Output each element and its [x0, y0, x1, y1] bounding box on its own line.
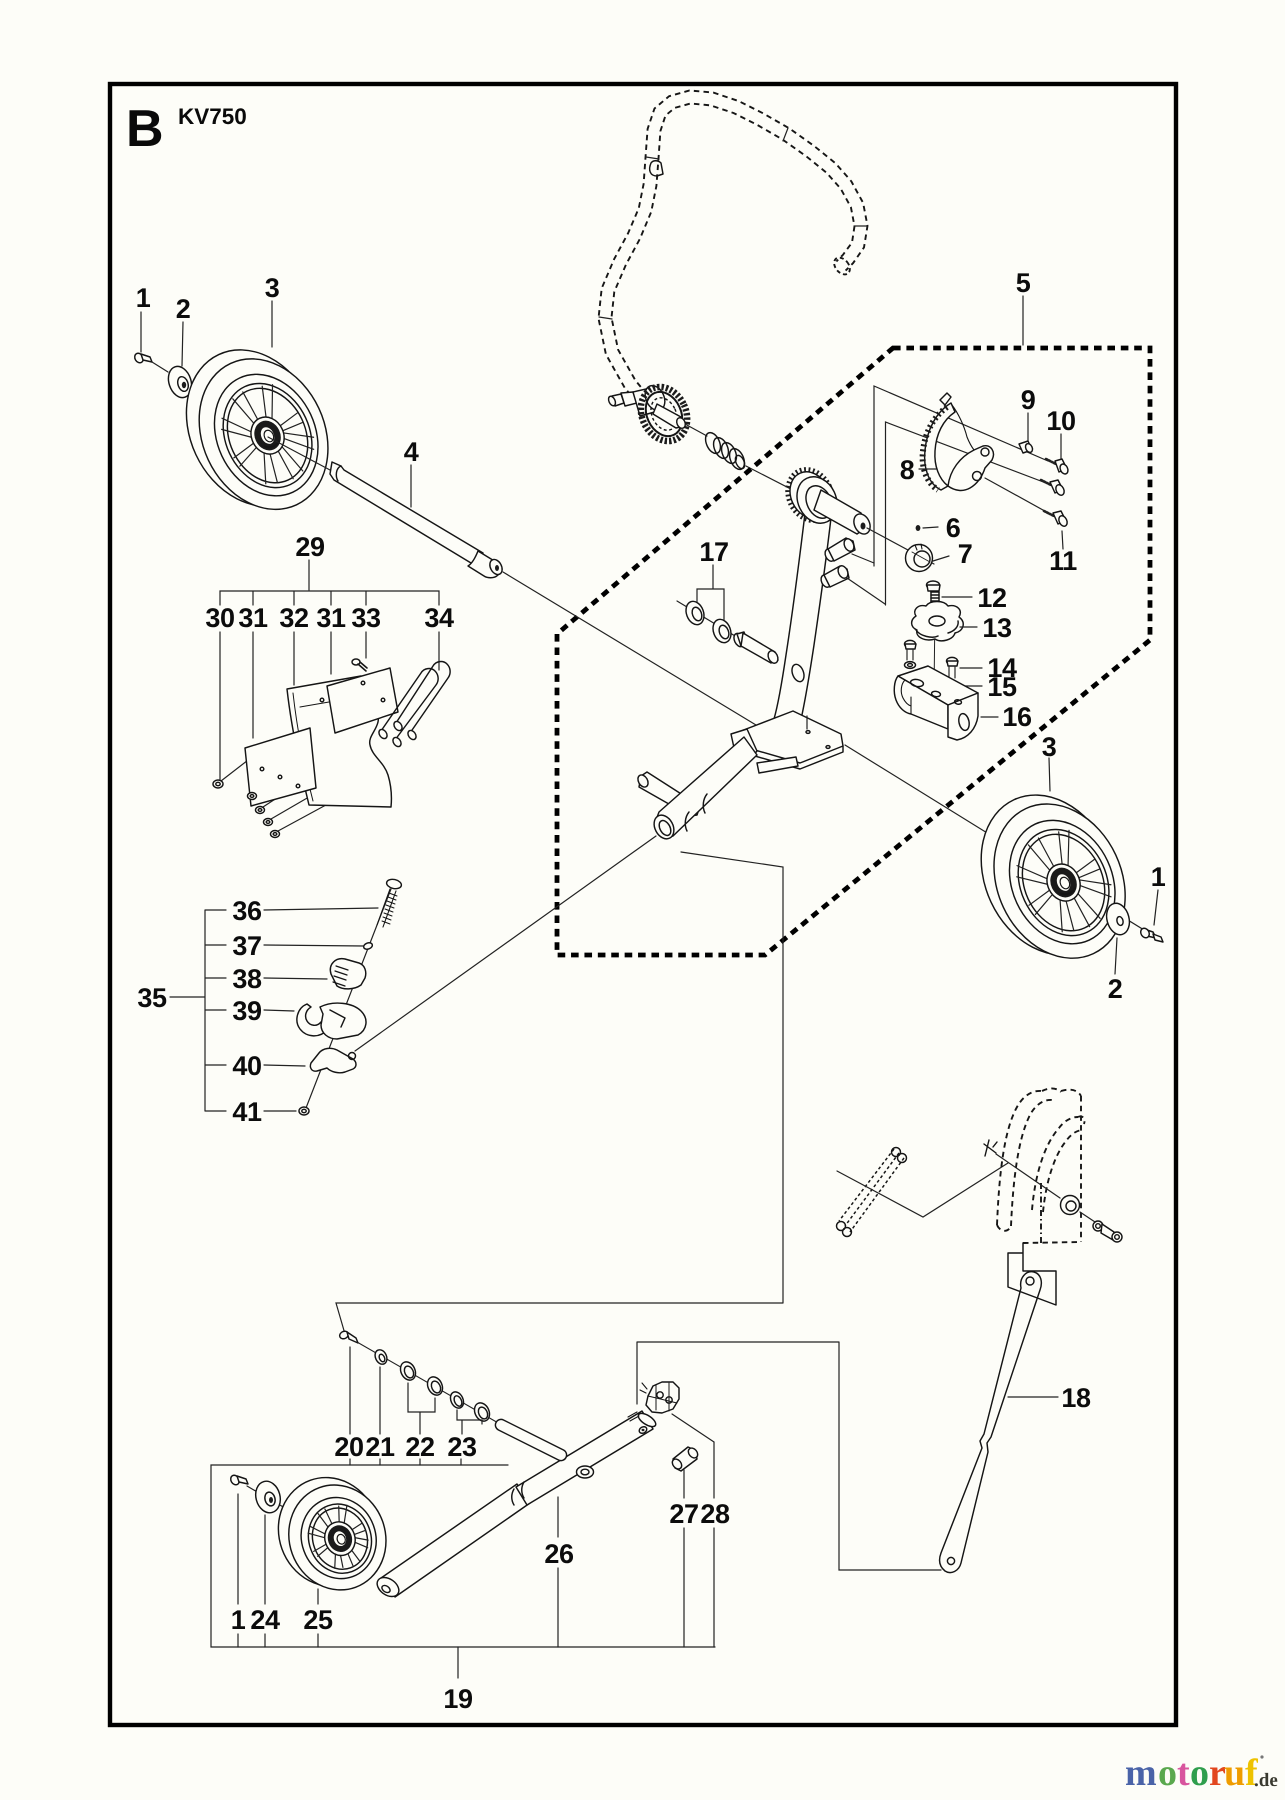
- svg-text:1: 1: [136, 283, 151, 313]
- svg-text:31: 31: [238, 603, 268, 633]
- svg-text:34: 34: [424, 603, 454, 633]
- svg-text:1: 1: [1151, 862, 1166, 892]
- svg-text:1: 1: [231, 1605, 246, 1635]
- svg-text:26: 26: [544, 1539, 574, 1569]
- svg-text:12: 12: [977, 583, 1006, 613]
- svg-text:2: 2: [176, 294, 191, 324]
- svg-text:41: 41: [232, 1097, 262, 1127]
- svg-text:23: 23: [447, 1432, 477, 1462]
- svg-text:3: 3: [265, 273, 280, 303]
- svg-text:33: 33: [351, 603, 381, 633]
- svg-text:m: m: [1125, 1752, 1157, 1794]
- svg-text:37: 37: [232, 931, 261, 961]
- svg-text:35: 35: [137, 983, 167, 1013]
- svg-text:21: 21: [365, 1432, 395, 1462]
- svg-text:7: 7: [958, 539, 973, 569]
- svg-text:13: 13: [982, 613, 1012, 643]
- svg-text:4: 4: [404, 437, 419, 467]
- svg-text:.de: .de: [1254, 1770, 1278, 1791]
- svg-text:17: 17: [699, 537, 728, 567]
- svg-text:3: 3: [1042, 732, 1057, 762]
- svg-text:18: 18: [1061, 1383, 1091, 1413]
- svg-text:24: 24: [250, 1605, 280, 1635]
- svg-text:20: 20: [334, 1432, 363, 1462]
- svg-text:38: 38: [232, 964, 262, 994]
- svg-text:32: 32: [279, 603, 308, 633]
- svg-text:B: B: [126, 100, 164, 158]
- svg-text:9: 9: [1021, 385, 1036, 415]
- svg-text:19: 19: [443, 1684, 473, 1714]
- svg-text:u: u: [1224, 1752, 1245, 1794]
- svg-text:39: 39: [232, 996, 262, 1026]
- svg-text:16: 16: [1002, 702, 1032, 732]
- svg-text:22: 22: [405, 1432, 434, 1462]
- svg-text:28: 28: [700, 1499, 730, 1529]
- svg-text:t: t: [1177, 1752, 1190, 1794]
- svg-text:40: 40: [232, 1051, 261, 1081]
- svg-text:31: 31: [316, 603, 346, 633]
- svg-text:2: 2: [1108, 974, 1123, 1004]
- svg-text:8: 8: [900, 455, 915, 485]
- svg-text:10: 10: [1046, 406, 1075, 436]
- svg-text:25: 25: [303, 1605, 333, 1635]
- svg-text:o: o: [1158, 1752, 1177, 1794]
- svg-text:36: 36: [232, 896, 262, 926]
- svg-text:30: 30: [205, 603, 234, 633]
- svg-text:15: 15: [987, 672, 1017, 702]
- svg-text:27: 27: [669, 1499, 698, 1529]
- svg-text:11: 11: [1049, 546, 1077, 576]
- svg-text:o: o: [1190, 1752, 1209, 1794]
- svg-text:5: 5: [1016, 268, 1031, 298]
- svg-text:29: 29: [295, 532, 325, 562]
- svg-text:KV750: KV750: [178, 104, 247, 129]
